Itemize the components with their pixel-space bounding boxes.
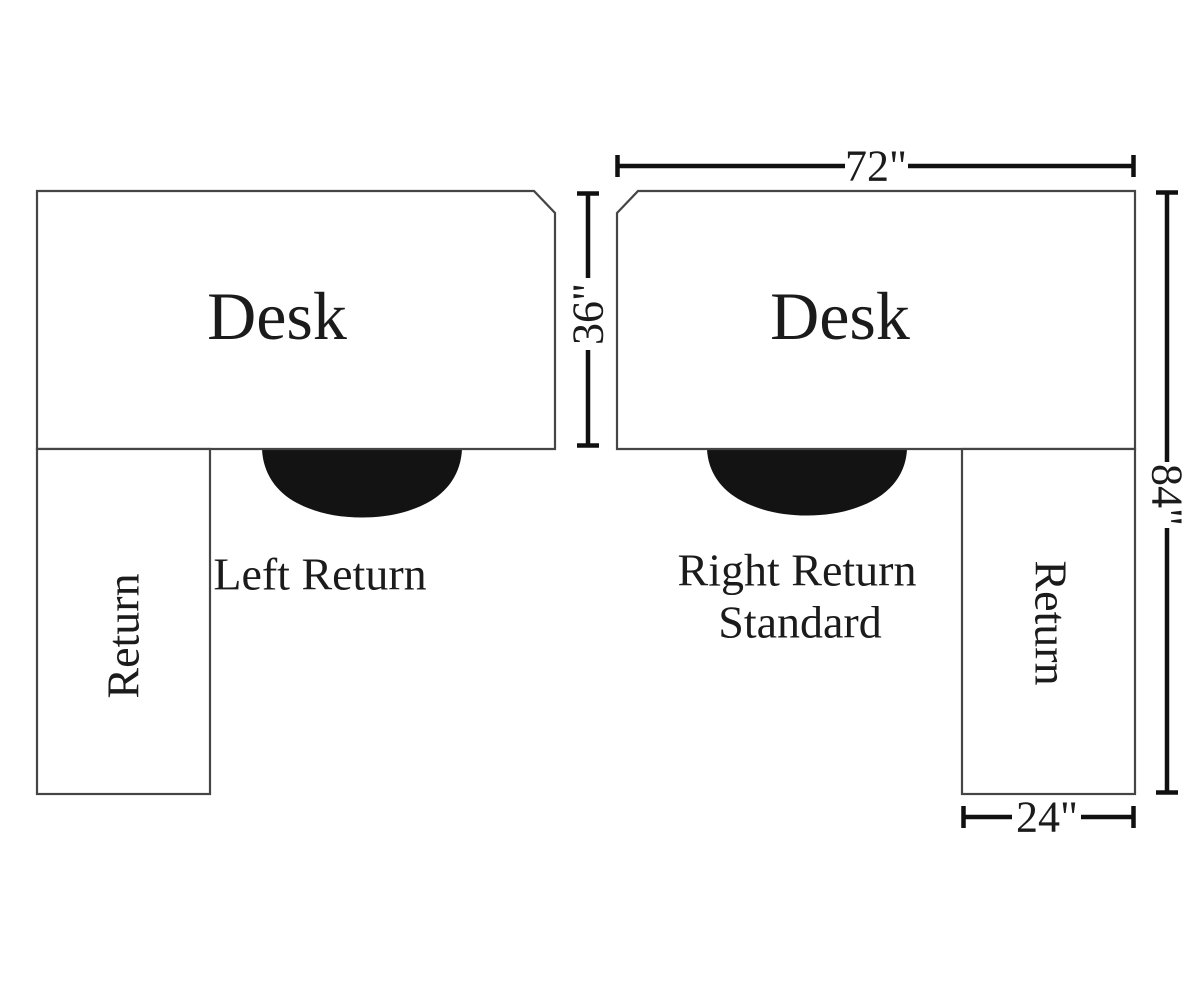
dimension-desk-depth-label: 36"	[564, 283, 613, 345]
left-chair-icon	[262, 449, 462, 518]
right-desk-label: Desk	[770, 278, 910, 354]
dimension-overall-depth-label: 84"	[1143, 464, 1192, 526]
right-configuration-caption-line1: Right Return	[678, 545, 917, 596]
right-configuration-caption-line2: Standard	[718, 597, 882, 648]
dimension-overall-depth: 84"	[1143, 193, 1192, 793]
right-return-label: Return	[1026, 560, 1077, 685]
right-chair-icon	[707, 449, 907, 516]
dimension-desk-width: 72"	[618, 142, 1134, 191]
dimension-desk-depth: 36"	[564, 194, 613, 446]
dimension-return-width: 24"	[964, 793, 1134, 842]
dimension-return-width-label: 24"	[1016, 793, 1078, 842]
right-configuration: Desk Return Right Return Standard	[617, 191, 1135, 794]
left-configuration: Desk Return Left Return	[37, 191, 555, 794]
dimension-desk-width-label: 72"	[845, 142, 907, 191]
left-desk-label: Desk	[207, 278, 347, 354]
left-configuration-caption: Left Return	[213, 549, 426, 600]
desk-configuration-diagram: Desk Return Left Return Desk Return Righ…	[0, 0, 1200, 1000]
left-return-label: Return	[98, 573, 149, 698]
